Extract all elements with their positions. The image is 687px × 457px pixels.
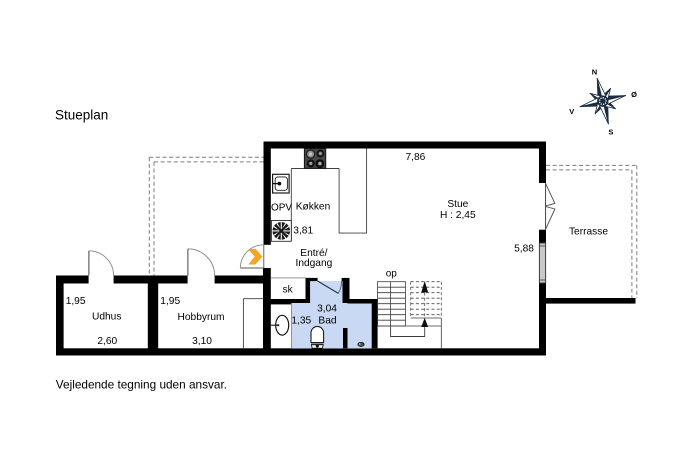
svg-text:3,10: 3,10 xyxy=(192,336,212,347)
svg-text:5,88: 5,88 xyxy=(514,244,534,255)
svg-text:Stue: Stue xyxy=(447,199,468,210)
svg-text:3,04: 3,04 xyxy=(317,303,337,314)
svg-text:7,86: 7,86 xyxy=(405,152,425,163)
svg-text:Vejledende tegning uden ansvar: Vejledende tegning uden ansvar. xyxy=(56,378,227,392)
svg-text:Terrasse: Terrasse xyxy=(569,227,608,238)
svg-text:OPV: OPV xyxy=(271,202,292,213)
svg-text:S: S xyxy=(608,127,613,136)
svg-text:Køkken: Køkken xyxy=(296,202,331,213)
svg-text:Indgang: Indgang xyxy=(295,258,332,269)
svg-text:H : 2,45: H : 2,45 xyxy=(440,210,476,221)
svg-text:op: op xyxy=(386,268,398,279)
svg-text:2,60: 2,60 xyxy=(97,336,117,347)
svg-text:Udhus: Udhus xyxy=(92,311,121,322)
svg-text:Entré/: Entré/ xyxy=(300,248,327,259)
svg-text:V: V xyxy=(569,107,574,116)
svg-text:Ø: Ø xyxy=(631,90,637,99)
svg-text:N: N xyxy=(592,67,597,76)
svg-text:1,35: 1,35 xyxy=(291,315,311,326)
svg-text:Hobbyrum: Hobbyrum xyxy=(178,312,225,323)
svg-text:Bad: Bad xyxy=(318,316,336,327)
svg-text:Stueplan: Stueplan xyxy=(55,108,108,123)
svg-text:1,95: 1,95 xyxy=(66,296,86,307)
svg-text:sk: sk xyxy=(283,285,294,296)
svg-text:1,95: 1,95 xyxy=(160,296,180,307)
svg-text:3,81: 3,81 xyxy=(293,225,313,236)
